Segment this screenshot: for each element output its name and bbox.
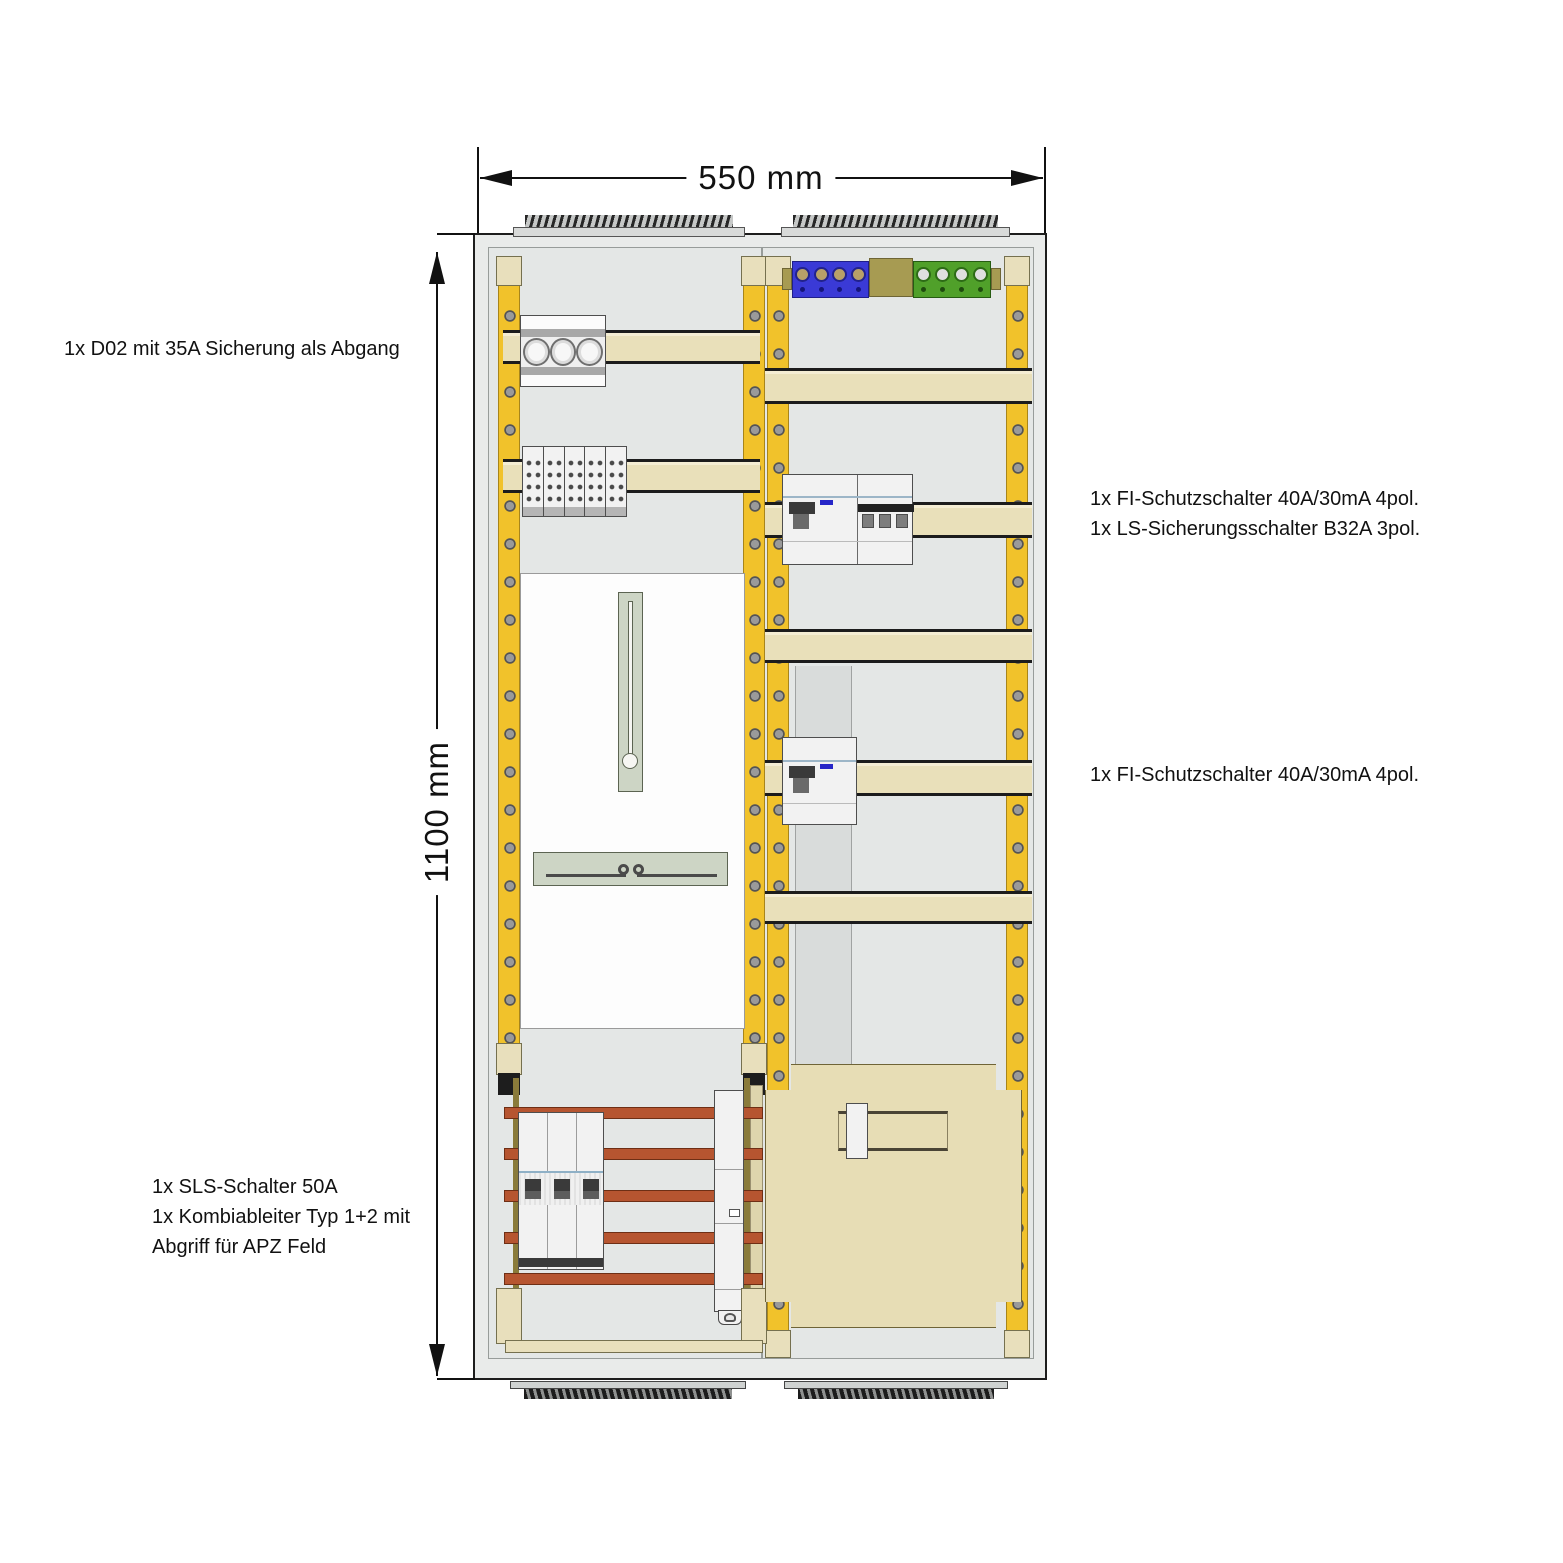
sls-toggle [583,1179,599,1199]
d02-fuse-cap [523,338,550,366]
breaker-front-line2 [783,541,912,542]
busbar-support-top-right [741,1043,767,1075]
terminal-dot [959,287,964,292]
arrowhead-up [429,252,445,284]
annotation-fi: 1x FI-Schutzschalter 40A/30mA 4pol. [1090,760,1419,790]
terminal-tab [782,268,792,290]
terminal-dots [587,459,605,505]
annotation-d02: 1x D02 mit 35A Sicherung als Abgang [64,334,400,364]
rail-bracket [741,256,767,286]
meter-hook-left [618,864,629,875]
ls-toggle [879,514,891,528]
fi-test-mark [820,500,833,505]
arrester-window [729,1209,740,1217]
meter-slot-vertical [618,592,643,792]
annotation-line: 1x Kombiableiter Typ 1+2 mit [152,1202,410,1232]
terminal-hole [814,267,829,282]
terminal-dot [856,287,861,292]
terminal-dot [921,287,926,292]
d02-top-strip [521,316,605,329]
grille-fins [525,215,733,227]
terminal-hole [832,267,847,282]
drawing-canvas: 550 mm 1100 mm 1x D02 mit 35A Sicherung … [0,0,1563,1563]
surge-arrester-kombiableiter [714,1090,744,1312]
pe-terminal-holes [914,267,990,282]
terminal-foot [565,507,585,516]
d02-bottom-strip [521,375,605,386]
dimension-width-label: 550 mm [686,159,835,197]
vertical-rail-left-outer [498,258,520,1050]
terminal-dots [567,459,585,505]
d02-fuse-holder [520,315,606,387]
d02-fuse-row [521,337,605,367]
terminal-foot [544,507,564,516]
terminal-dots [608,459,626,505]
sls-bottom-band [519,1258,603,1267]
breaker-front-line [783,496,912,498]
arrowhead-left [480,170,512,186]
breaker-divider [857,475,858,564]
extension-line [437,1378,475,1380]
meter-hook-right [633,864,644,875]
terminal-foot [585,507,605,516]
bottom-cross-strip [505,1340,763,1353]
din-rail-right-1 [765,368,1032,404]
ls-terminal-band [858,504,914,512]
grille-base [781,227,1010,237]
ls-toggle [896,514,908,528]
extension-line [437,233,475,235]
terminal-dot [800,287,805,292]
n-terminal-dots [793,287,868,292]
arrowhead-right [1011,170,1043,186]
arrowhead-down [429,1344,445,1376]
din-rail-right-3 [765,629,1032,663]
apz-cover-panel [765,1064,1022,1328]
breaker-front-line2 [783,803,856,804]
terminal-hole [795,267,810,282]
grille-fins [798,1389,994,1399]
rail-foot [1004,1330,1030,1358]
annotation-line: Abgriff für APZ Feld [152,1232,410,1262]
terminal-foot [606,507,626,516]
d02-band [521,367,605,375]
annotation-line: 1x SLS-Schalter 50A [152,1172,410,1202]
terminal-block-row [522,446,627,517]
vent-grille-bottom-right [784,1381,1008,1399]
din-rail-right-5 [765,891,1032,924]
sls-toggle [525,1179,541,1199]
grille-base [513,227,745,237]
fi-toggle-lower [793,778,809,793]
meter-slot-groove [628,601,633,759]
pe-terminal-dots [914,287,990,292]
fi-toggle-lower [793,514,809,529]
terminal-hole [851,267,866,282]
d02-fuse-cap [576,338,603,366]
rail-foot [765,1330,791,1358]
meter-hook-slot-left [546,874,626,877]
terminal-block [605,446,627,517]
pe-terminal-block [913,261,991,298]
terminal-dot [940,287,945,292]
arrester-segment-line [715,1289,743,1290]
terminal-dots [525,459,543,505]
terminal-hole [954,267,969,282]
extension-line [477,147,479,233]
terminal-hole [916,267,931,282]
busbar-support-bottom-right [741,1288,767,1344]
busbar-support-top-left [496,1043,522,1075]
terminal-dot [978,287,983,292]
grille-fins [524,1389,732,1399]
fi-toggle [789,502,815,514]
d02-fuse-cap [550,338,577,366]
terminal-tab [991,268,1001,290]
dimension-height-label: 1100 mm [418,729,456,895]
terminal-hole [935,267,950,282]
ls-toggle [862,514,874,528]
annotation-sls: 1x SLS-Schalter 50A 1x Kombiableiter Typ… [152,1172,410,1262]
n-terminal-holes [793,267,868,282]
grille-base [784,1381,1008,1389]
meter-hook-slot-right [637,874,717,877]
busbar-support-bottom-left [496,1288,522,1344]
grille-fins [793,215,998,227]
breaker-front-line [783,760,856,762]
terminal-hole [973,267,988,282]
rail-bracket [1004,256,1030,286]
n-terminal-block [792,261,869,298]
apz-rail-clip [846,1103,868,1159]
fi-breaker-middle [782,737,857,825]
d02-band [521,329,605,337]
terminal-foot [523,507,543,516]
grille-base [510,1381,746,1389]
annotation-line: 1x FI-Schutzschalter 40A/30mA 4pol. [1090,484,1420,514]
extension-line [1044,147,1046,233]
terminal-block [543,446,565,517]
vent-grille-top-left [513,215,745,237]
arrester-segment-line [715,1223,743,1224]
fi-breaker-top [782,474,913,565]
rail-bracket [496,256,522,286]
khaki-spacer-block [869,258,913,297]
arrester-segment-line [715,1169,743,1170]
meter-slot-hole [622,753,638,769]
terminal-dot [837,287,842,292]
terminal-dots [546,459,564,505]
terminal-dot [819,287,824,292]
arrester-foot [718,1310,742,1325]
fi-test-mark [820,764,833,769]
sls-switch [518,1112,604,1270]
annotation-line: 1x LS-Sicherungsschalter B32A 3pol. [1090,514,1420,544]
wiring-duct [795,666,852,1066]
arrester-foot-hole [724,1313,736,1322]
annotation-fi-ls: 1x FI-Schutzschalter 40A/30mA 4pol. 1x L… [1090,484,1420,544]
meter-bracket-horizontal [533,852,728,886]
terminal-block [584,446,606,517]
terminal-block [564,446,586,517]
vertical-rail-left-inner [743,258,765,1050]
fi-toggle [789,766,815,778]
sls-toggle [554,1179,570,1199]
vent-grille-top-right [781,215,1010,237]
terminal-block [522,446,544,517]
vent-grille-bottom-left [510,1381,746,1399]
